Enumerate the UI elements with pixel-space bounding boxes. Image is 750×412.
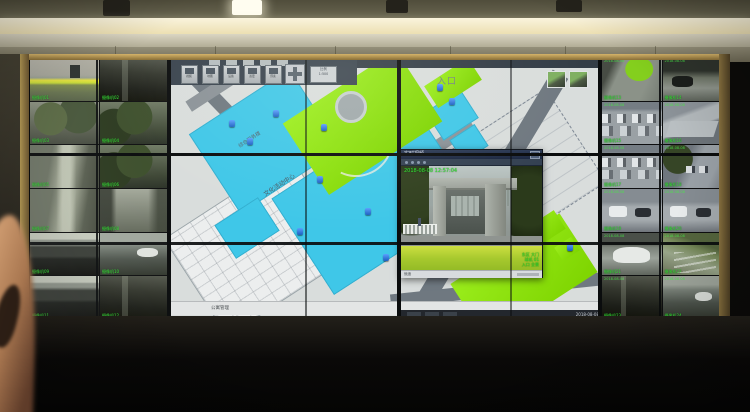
feed-label: 摄像机15 <box>604 139 621 143</box>
camera-feed-tile[interactable]: 摄像机01 <box>30 58 99 101</box>
tool-label: 巡更 <box>250 74 255 78</box>
tool-label: 设备 <box>229 74 234 78</box>
camera-feed-tile[interactable]: 2018-08-08摄像机22 <box>663 233 723 276</box>
feed-label: 摄像机17 <box>604 183 621 187</box>
live-video-popup[interactable]: 实时视频 × 2018-08-08 12:57:04 东区 大门 球机 01 入… <box>400 149 543 278</box>
right-camera-grid: 2018-08-08摄像机132018-08-08摄像机142018-08-08… <box>602 58 722 319</box>
camera-feed-tile[interactable]: 2018-08-08摄像机17 <box>602 145 662 188</box>
camera-feed-tile[interactable]: 摄像机12 <box>100 276 169 319</box>
video-thumbnail[interactable] <box>547 71 566 88</box>
feed-timestamp: 2018-08-08 <box>665 190 685 194</box>
tool-label: 地图 <box>208 74 213 78</box>
feed-timestamp: 2018-08-08 <box>665 234 685 238</box>
map-camera-icon[interactable] <box>229 120 235 127</box>
ceiling-vent <box>386 0 408 13</box>
camera-feed-tile[interactable]: 摄像机08 <box>100 189 169 232</box>
map-camera-icon[interactable] <box>247 138 253 145</box>
map-toolbar: 视频地图设备巡更预案 <box>181 65 282 84</box>
video-osd-text: 东区 大门 球机 01 入口 全景 <box>522 252 539 267</box>
feed-timestamp: 2018-08-08 <box>604 234 624 238</box>
feed-timestamp: 2018-08-08 <box>665 103 685 107</box>
soffit <box>0 34 750 47</box>
map-tool-button[interactable]: 预案 <box>265 65 282 84</box>
video-gate-pillar <box>485 184 506 244</box>
feed-label: 摄像机03 <box>32 139 49 143</box>
bezel-line <box>167 56 171 322</box>
feed-label: 摄像机02 <box>102 96 119 100</box>
feed-timestamp: 2018-08-08 <box>604 103 624 107</box>
cove-light <box>0 18 750 34</box>
camera-feed-tile[interactable]: 2018-08-08摄像机18 <box>663 145 723 188</box>
bezel-line <box>305 56 307 322</box>
camera-feed-tile[interactable]: 2018-08-08摄像机13 <box>602 58 662 101</box>
camera-feed-tile[interactable]: 摄像机07 <box>30 189 99 232</box>
feed-label: 摄像机22 <box>665 270 682 274</box>
feed-timestamp: 2018-08-08 <box>665 146 685 150</box>
map-status-text: 公寓管理 <box>211 305 229 311</box>
feed-timestamp: 2018-08-08 <box>604 190 624 194</box>
tool-icon <box>227 68 236 74</box>
popup-status-meter <box>517 273 539 276</box>
video-thumbnail[interactable] <box>569 71 588 88</box>
camera-feed-tile[interactable]: 2018-08-08摄像机20 <box>663 189 723 232</box>
ceiling-vent <box>556 0 582 12</box>
camera-feed-tile[interactable]: 摄像机02 <box>100 58 169 101</box>
feed-label: 摄像机14 <box>665 96 682 100</box>
feed-timestamp: 2018-08-08 <box>665 277 685 281</box>
camera-feed-tile[interactable]: 2018-08-08摄像机16 <box>663 102 723 145</box>
bezel-line <box>30 242 722 245</box>
feed-label: 摄像机16 <box>665 139 682 143</box>
camera-feed-tile[interactable]: 摄像机11 <box>30 276 99 319</box>
camera-feed-tile[interactable]: 2018-08-08摄像机21 <box>602 233 662 276</box>
video-person <box>418 218 421 226</box>
feed-label: 摄像机19 <box>604 227 621 231</box>
map-camera-icon[interactable] <box>273 110 279 117</box>
map-scale-box: 比例 1:500 <box>310 66 337 83</box>
bezel-line <box>510 56 512 322</box>
map-camera-icon[interactable] <box>297 228 303 235</box>
console-desk <box>0 316 750 412</box>
feed-label: 摄像机01 <box>32 96 49 100</box>
popup-status-text: 就绪 <box>404 272 411 277</box>
tool-icon <box>269 68 278 74</box>
camera-feed-tile[interactable]: 2018-08-08摄像机14 <box>663 58 723 101</box>
control-room-photo: 摄像机01摄像机02摄像机03摄像机04摄像机05摄像机06摄像机07摄像机08… <box>0 0 750 412</box>
feed-label: 摄像机09 <box>32 270 49 274</box>
camera-feed-tile[interactable]: 摄像机09 <box>30 233 99 276</box>
map-camera-icon[interactable] <box>321 124 327 131</box>
feed-label: 摄像机10 <box>102 270 119 274</box>
left-camera-grid: 摄像机01摄像机02摄像机03摄像机04摄像机05摄像机06摄像机07摄像机08… <box>30 58 169 319</box>
camera-feed-tile[interactable]: 摄像机06 <box>100 145 169 188</box>
feed-label: 摄像机18 <box>665 183 682 187</box>
ceiling-vent <box>103 0 130 16</box>
bezel-line <box>598 56 602 322</box>
feed-label: 摄像机05 <box>32 183 49 187</box>
bezel-line <box>659 56 661 322</box>
camera-feed-tile[interactable]: 2018-08-08摄像机15 <box>602 102 662 145</box>
wall-frame-top <box>20 54 730 60</box>
wall-frame-right <box>719 54 730 324</box>
tool-icon <box>248 68 257 74</box>
feed-timestamp: 2018-08-08 <box>604 146 624 150</box>
map-camera-icon[interactable] <box>449 98 455 105</box>
popup-video-frame[interactable]: 2018-08-08 12:57:04 东区 大门 球机 01 入口 全景 <box>401 166 542 270</box>
popup-toolbar[interactable] <box>401 159 542 166</box>
map-camera-icon[interactable] <box>317 176 323 183</box>
feed-label: 摄像机13 <box>604 96 621 100</box>
camera-feed-tile[interactable]: 2018-08-08摄像机24 <box>663 276 723 319</box>
camera-feed-tile[interactable]: 摄像机03 <box>30 102 99 145</box>
feed-timestamp: 2018-08-08 <box>604 277 624 281</box>
map-tool-button[interactable]: 视频 <box>181 65 198 84</box>
map-camera-icon[interactable] <box>383 254 389 261</box>
map-tool-button[interactable]: 巡更 <box>244 65 261 84</box>
map-camera-icon[interactable] <box>567 244 573 251</box>
video-timestamp: 2018-08-08 12:57:04 <box>404 168 457 174</box>
feed-label: 摄像机06 <box>102 183 119 187</box>
feed-label: 摄像机04 <box>102 139 119 143</box>
map-pan-control[interactable] <box>285 64 305 84</box>
feed-label: 摄像机20 <box>665 227 682 231</box>
bezel-line <box>397 56 401 322</box>
map-tool-button[interactable]: 地图 <box>202 65 219 84</box>
bezel-line <box>96 56 98 322</box>
tool-label: 预案 <box>271 74 276 78</box>
tool-label: 视频 <box>187 74 192 78</box>
map-tool-button[interactable]: 设备 <box>223 65 240 84</box>
camera-feed-tile[interactable]: 摄像机10 <box>100 233 169 276</box>
camera-feed-tile[interactable]: 摄像机05 <box>30 145 99 188</box>
feed-label: 摄像机08 <box>102 227 119 231</box>
tool-icon <box>185 68 194 74</box>
camera-feed-tile[interactable]: 2018-08-08摄像机19 <box>602 189 662 232</box>
camera-feed-tile[interactable]: 2018-08-08摄像机23 <box>602 276 662 319</box>
camera-feed-tile[interactable]: 摄像机04 <box>100 102 169 145</box>
popup-statusbar: 就绪 <box>401 270 542 278</box>
ceiling-light <box>232 0 262 15</box>
feed-label: 摄像机21 <box>604 270 621 274</box>
tool-icon <box>206 68 215 74</box>
map-camera-icon[interactable] <box>365 208 371 215</box>
map-camera-icon[interactable] <box>437 84 443 91</box>
video-gate-view <box>451 196 479 216</box>
bezel-line <box>30 153 722 156</box>
feed-label: 摄像机07 <box>32 227 49 231</box>
